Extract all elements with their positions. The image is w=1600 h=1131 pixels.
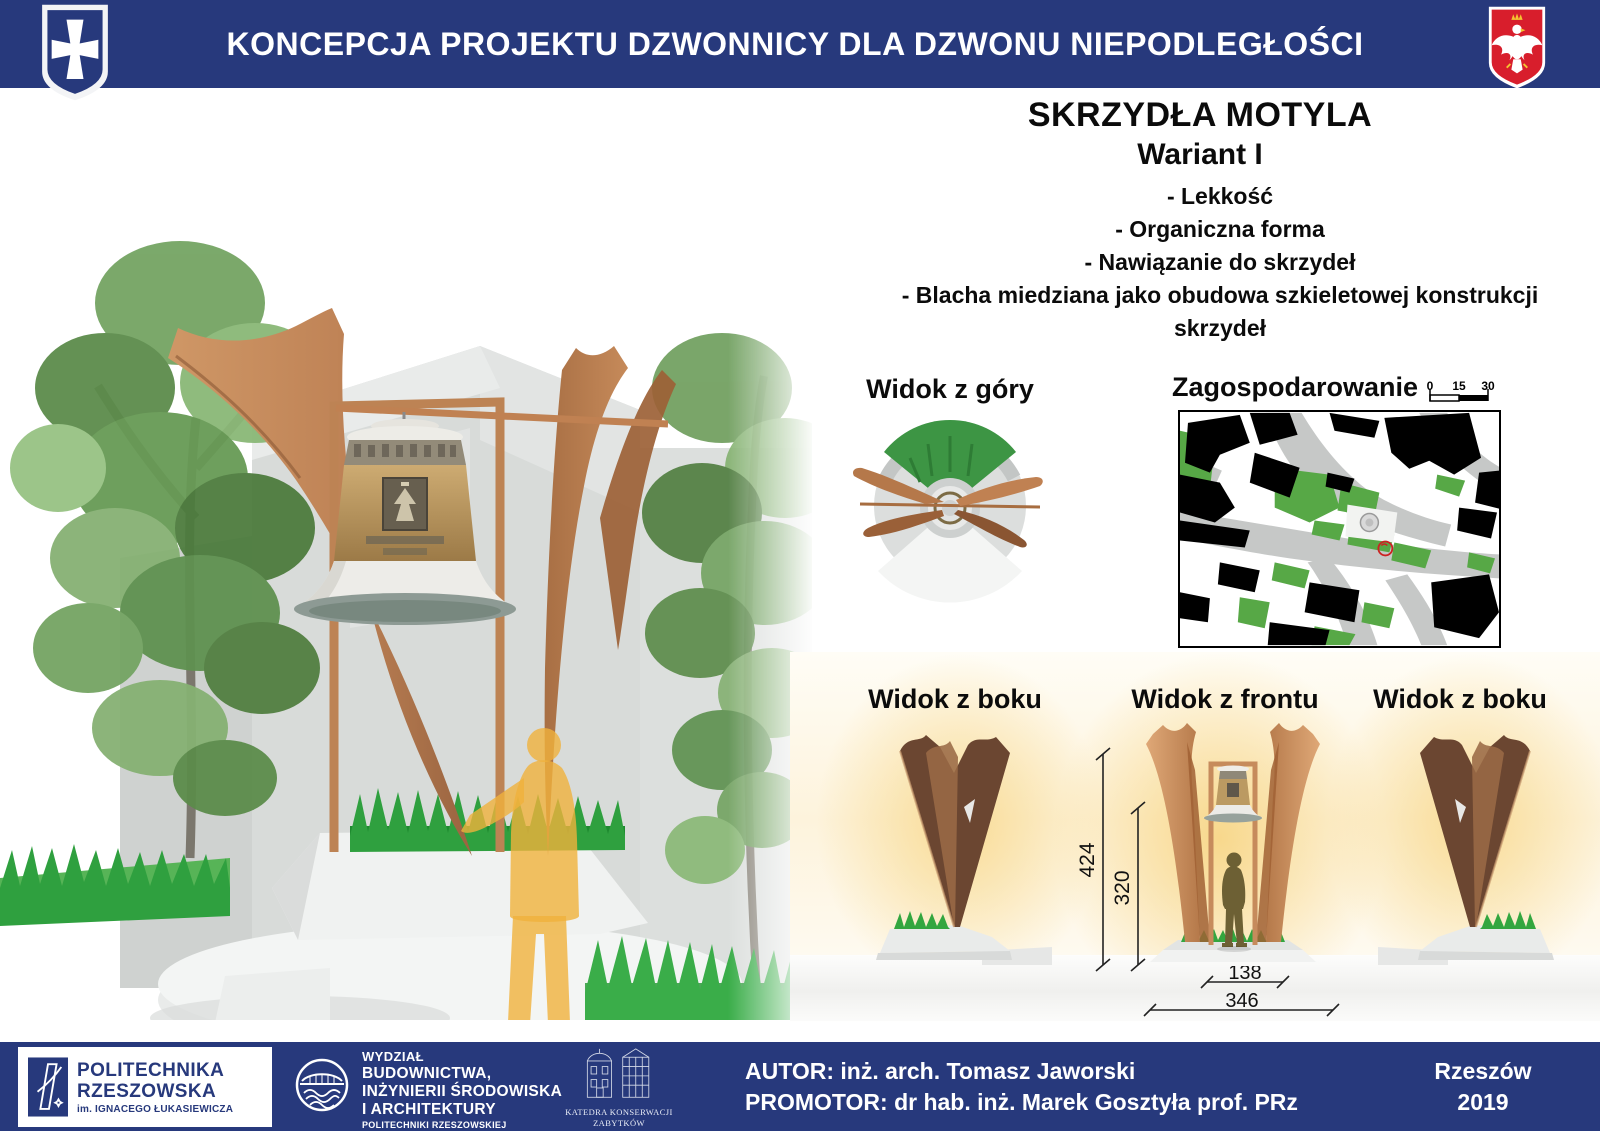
faculty-logo-icon bbox=[294, 1052, 350, 1120]
department-line2: ZABYTKÓW bbox=[560, 1118, 678, 1128]
side-view-right-render bbox=[1378, 714, 1568, 966]
front-view-label: Widok z frontu bbox=[1120, 684, 1330, 715]
concept-title: SKRZYDŁA MOTYLA bbox=[820, 96, 1580, 135]
feature-item: - Nawiązanie do skrzydeł bbox=[900, 246, 1540, 279]
site-plan-label: Zagospodarowanie bbox=[1172, 372, 1432, 403]
side-view-right-label: Widok z boku bbox=[1355, 684, 1565, 715]
dim-opening-width: 138 bbox=[1228, 966, 1261, 984]
politechnika-rzeszowska-logo-icon bbox=[28, 1056, 68, 1118]
university-name-line1: POLITECHNIKA bbox=[77, 1060, 233, 1081]
faculty-line2: BUDOWNICTWA, bbox=[362, 1065, 562, 1083]
department-logo-box: KATEDRA KONSERWACJI ZABYTKÓW bbox=[560, 1047, 678, 1128]
faculty-line4: I ARCHITEKTURY bbox=[362, 1101, 562, 1119]
dim-total-height: 424 bbox=[1078, 842, 1099, 877]
author-line: AUTOR: inż. arch. Tomasz Jaworski bbox=[745, 1056, 1375, 1087]
faculty-name: WYDZIAŁ BUDOWNICTWA, INŻYNIERII ŚRODOWIS… bbox=[362, 1049, 562, 1131]
vertical-dimensions: 424 320 bbox=[1078, 746, 1156, 976]
concept-features: - Lekkość - Organiczna forma - Nawiązani… bbox=[900, 180, 1540, 345]
top-view-render bbox=[848, 406, 1053, 641]
feature-item: - Organiczna forma bbox=[900, 213, 1540, 246]
faculty-line1: WYDZIAŁ bbox=[362, 1049, 562, 1065]
credits: AUTOR: inż. arch. Tomasz Jaworski PROMOT… bbox=[745, 1056, 1375, 1118]
header-bar: KONCEPCJA PROJEKTU DZWONNICY DLA DZWONU … bbox=[0, 0, 1600, 88]
polish-eagle-icon bbox=[1487, 5, 1547, 91]
side-view-left-label: Widok z boku bbox=[850, 684, 1060, 715]
map-scale-bar: 0 15 30 bbox=[1424, 378, 1502, 406]
university-logo-box: POLITECHNIKA RZESZOWSKA im. IGNACEGO ŁUK… bbox=[18, 1047, 272, 1127]
department-line1: KATEDRA KONSERWACJI bbox=[560, 1107, 678, 1117]
feature-item: - Lekkość bbox=[900, 180, 1540, 213]
faculty-line3: INŻYNIERII ŚRODOWISKA bbox=[362, 1083, 562, 1101]
university-name: POLITECHNIKA RZESZOWSKA im. IGNACEGO ŁUK… bbox=[77, 1060, 233, 1115]
front-view-render bbox=[1133, 712, 1333, 968]
university-name-line2: RZESZOWSKA bbox=[77, 1081, 233, 1102]
dim-base-width: 346 bbox=[1225, 990, 1258, 1012]
dim-opening-height: 320 bbox=[1111, 870, 1134, 905]
site-plan-map bbox=[1178, 410, 1501, 648]
top-view-label: Widok z góry bbox=[845, 374, 1055, 405]
year: 2019 bbox=[1408, 1087, 1558, 1118]
side-view-left-render bbox=[862, 714, 1052, 966]
presentation-board: KONCEPCJA PROJEKTU DZWONNICY DLA DZWONU … bbox=[0, 0, 1600, 1131]
horizontal-dimensions: 138 346 bbox=[1125, 966, 1365, 1024]
concept-variant: Wariant I bbox=[820, 138, 1580, 172]
footer-bar: POLITECHNIKA RZESZOWSKA im. IGNACEGO ŁUK… bbox=[0, 1042, 1600, 1131]
promoter-line: PROMOTOR: dr hab. inż. Marek Gosztyła pr… bbox=[745, 1087, 1375, 1118]
university-name-line3: im. IGNACEGO ŁUKASIEWICZA bbox=[77, 1104, 233, 1115]
main-perspective-render bbox=[0, 88, 812, 1020]
faculty-line5: POLITECHNIKI RZESZOWSKIEJ bbox=[362, 1119, 562, 1131]
heritage-conservation-department-icon bbox=[573, 1047, 665, 1101]
scale-tick: 15 bbox=[1452, 379, 1466, 393]
city-year: Rzeszów 2019 bbox=[1408, 1056, 1558, 1118]
board-title: KONCEPCJA PROJEKTU DZWONNICY DLA DZWONU … bbox=[150, 0, 1440, 88]
feature-item: - Blacha miedziana jako obudowa szkielet… bbox=[900, 279, 1540, 345]
rzeszow-coat-of-arms-icon bbox=[40, 3, 110, 102]
city: Rzeszów bbox=[1408, 1056, 1558, 1087]
